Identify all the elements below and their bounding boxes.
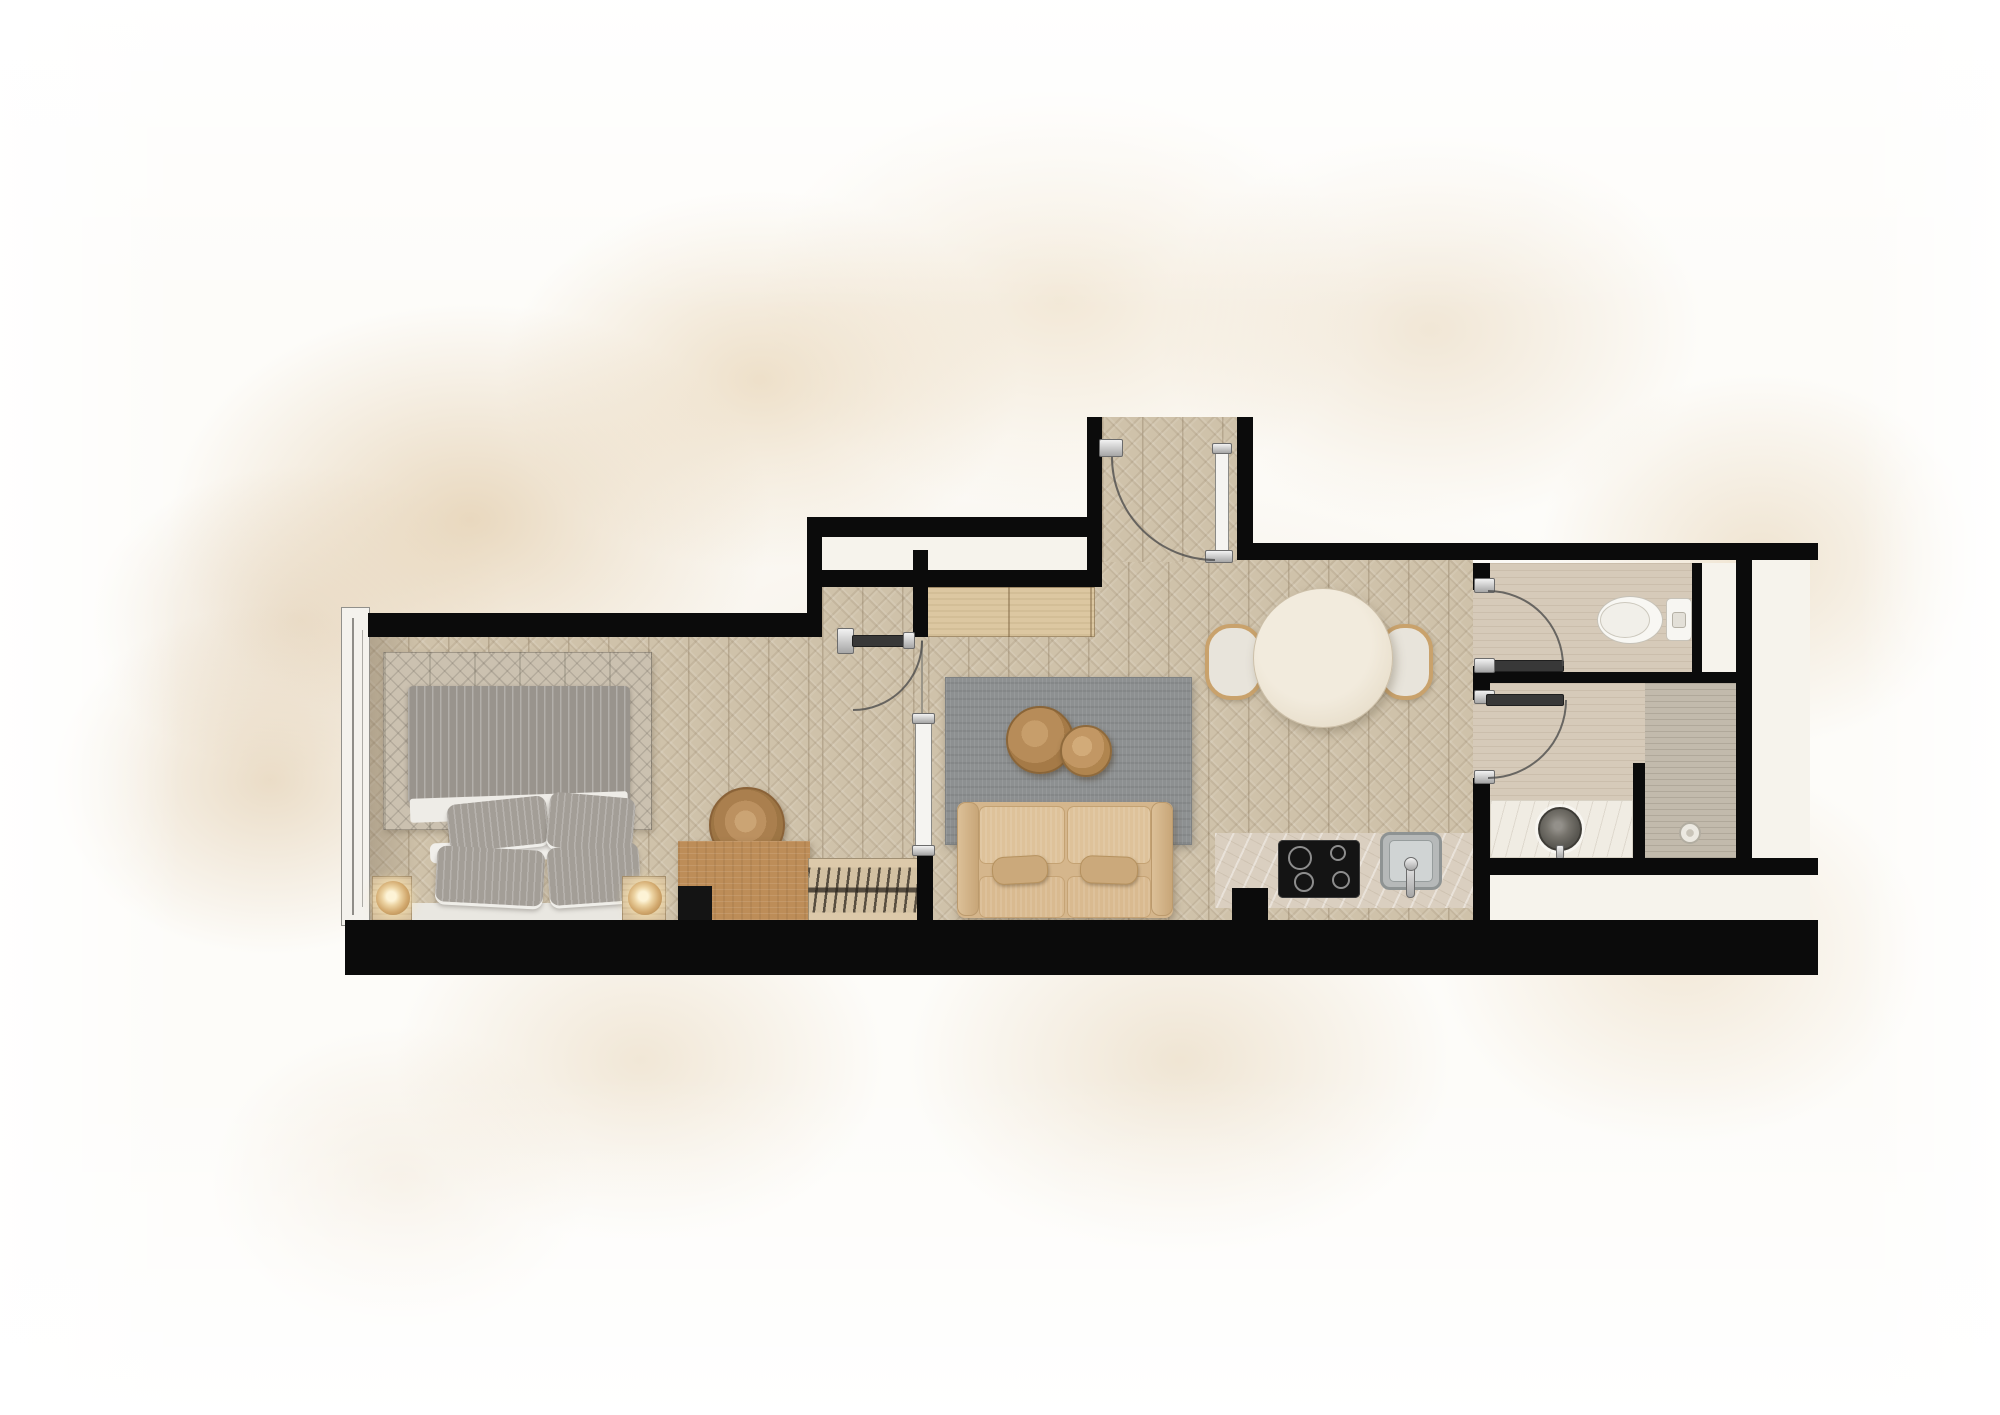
wall bbox=[917, 850, 933, 922]
bedroom-door-cap bbox=[903, 632, 915, 649]
wardrobe bbox=[927, 587, 1095, 637]
hall-door-cap bbox=[912, 713, 935, 724]
toilet-seat bbox=[1600, 602, 1650, 638]
wc-door-jamb bbox=[1474, 578, 1495, 593]
wall bbox=[1237, 417, 1253, 560]
shower-door-hinge bbox=[1474, 770, 1495, 784]
entry-door-leaf bbox=[1215, 447, 1229, 557]
sofa-arm bbox=[1151, 802, 1173, 916]
wall-cavity-white bbox=[822, 537, 1102, 570]
cooktop bbox=[1278, 840, 1360, 898]
entry-door-cap bbox=[1212, 443, 1232, 454]
shower-door-leaf bbox=[1486, 694, 1564, 706]
sofa-arm bbox=[957, 802, 979, 916]
wall bbox=[1736, 553, 1752, 875]
toilet-flush-button bbox=[1672, 612, 1686, 628]
wall bbox=[345, 920, 1818, 975]
hall-door-jamb-line bbox=[921, 640, 923, 720]
cooktop-burner bbox=[1332, 871, 1350, 889]
floor-plan-canvas bbox=[0, 0, 2000, 1415]
coffee-table-small bbox=[1060, 725, 1112, 777]
desk-chair bbox=[678, 886, 712, 923]
bedside-lamp bbox=[628, 881, 662, 915]
bedside-lamp bbox=[376, 881, 410, 915]
kitchen-faucet-base bbox=[1404, 857, 1418, 871]
wc-door-leaf bbox=[1486, 660, 1564, 672]
bed-pillow bbox=[435, 845, 546, 907]
vanity-faucet bbox=[1556, 845, 1564, 859]
bed-duvet bbox=[408, 686, 630, 804]
sofa-pillow bbox=[1080, 855, 1139, 885]
cooktop-burner bbox=[1288, 846, 1312, 870]
wall bbox=[1488, 672, 1752, 683]
sofa-pillow bbox=[991, 855, 1048, 886]
wall bbox=[807, 517, 1087, 537]
window-frame bbox=[341, 607, 370, 926]
entry-door-hinge bbox=[1099, 439, 1123, 457]
hall-door-cap bbox=[912, 845, 935, 856]
entry-door-cap bbox=[1205, 550, 1233, 563]
wall bbox=[368, 613, 822, 637]
bookshelf bbox=[808, 858, 922, 922]
window-glass-line bbox=[352, 618, 354, 915]
shower-drain bbox=[1679, 822, 1701, 844]
wall bbox=[1473, 778, 1490, 920]
cooktop-burner bbox=[1330, 845, 1346, 861]
hall-door-leaf bbox=[915, 718, 932, 852]
cooktop-burner bbox=[1294, 872, 1314, 892]
right-shaft-white bbox=[1752, 560, 1810, 858]
window-glass-line bbox=[362, 630, 363, 907]
apartment-floor-plan bbox=[0, 0, 2000, 1415]
wall bbox=[1490, 858, 1818, 875]
wall bbox=[1253, 543, 1818, 560]
dining-table bbox=[1253, 588, 1393, 728]
wall bbox=[1692, 563, 1702, 672]
bottom-right-ledge-white bbox=[1490, 875, 1810, 920]
wall bbox=[913, 550, 928, 637]
wall bbox=[822, 570, 1102, 587]
wc-door-hinge bbox=[1474, 658, 1495, 673]
